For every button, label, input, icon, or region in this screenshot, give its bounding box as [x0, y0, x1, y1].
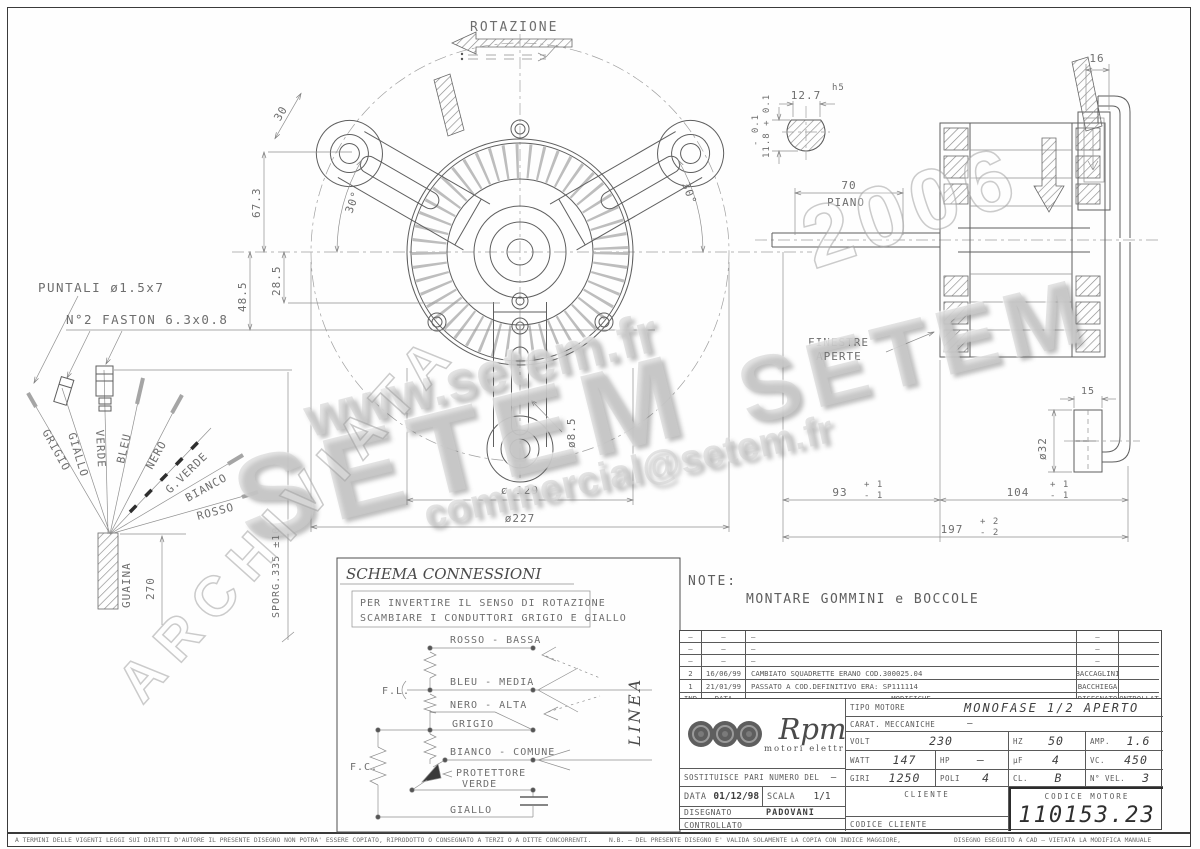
rev-date: –: [702, 631, 746, 643]
scala-value: 1/1: [799, 791, 845, 802]
volt-value: 230: [874, 734, 1008, 748]
logo-cell: Rpm motori elettrici: [680, 699, 846, 769]
rev-drawn: BACCHIEGA: [1077, 680, 1119, 693]
data-value: 01/12/98: [710, 791, 762, 802]
rev-checked: [1119, 655, 1159, 667]
cable-length-dim: 270: [144, 577, 157, 600]
dim-93: 93: [832, 486, 847, 499]
rev-date: 16/06/99: [702, 667, 746, 680]
dim-h5: h5: [832, 83, 845, 93]
giri-label: GIRI: [846, 774, 874, 783]
vent-arrow-hatch: [1034, 138, 1064, 212]
dim-dia8-5: ø8.5: [565, 418, 578, 449]
rev-desc: –: [746, 655, 1077, 667]
motor-side-view: 12.7 h5 11.8 + 0.1 - 0.1 16 70 PIANO FIN…: [751, 52, 1160, 542]
shaft-section-detail: 12.7 h5 11.8 + 0.1 - 0.1: [751, 83, 845, 164]
poli-label: POLI: [936, 774, 964, 783]
dim-11-8: 11.8 + 0.1: [762, 94, 772, 158]
side-view-dimensions: 16 70 PIANO FINESTRE APERTE 93 + 1 - 1 1…: [783, 52, 1128, 542]
cliente-label: CLIENTE: [904, 790, 950, 799]
dim-28-5: 28.5: [270, 266, 283, 297]
vc-value: 450: [1109, 753, 1163, 767]
note-text: MONTARE GOMMINI e BOCCOLE: [746, 592, 979, 607]
codice-motore-label: CODICE MOTORE: [1045, 792, 1130, 801]
brand-tagline: motori elettrici: [764, 744, 846, 754]
tipo-value: MONOFASE 1/2 APERTO: [964, 701, 1163, 715]
rev-ind: –: [680, 655, 702, 667]
dim-16: 16: [1089, 52, 1104, 65]
dim-104: 104: [1007, 486, 1030, 499]
dim-197-tm: - 2: [980, 528, 999, 538]
hz-label: HZ: [1009, 737, 1027, 746]
dim-dia32: ø32: [1036, 437, 1049, 460]
volt-label: VOLT: [846, 737, 874, 746]
carat-value: –: [939, 719, 1163, 729]
rev-checked: [1119, 643, 1159, 655]
finestre-label-1: FINESTRE: [808, 336, 869, 349]
sporgenza-dim: SPORG.335 ±10: [271, 527, 282, 618]
cl-label: CL.: [1009, 774, 1032, 783]
schema-circuit: [370, 646, 652, 820]
schema-rosso: ROSSO - BASSA: [450, 635, 541, 646]
dim-15: 15: [1081, 386, 1095, 397]
dim-12-7: 12.7: [791, 89, 822, 102]
schema-note-2: SCAMBIARE I CONDUTTORI GRIGIO E GIALLO: [360, 613, 627, 624]
dim-197-tp: + 2: [980, 517, 999, 527]
rev-desc: PASSATO A COD.DEFINITIVO ERA: SP111114: [746, 680, 1077, 693]
wire-label-giallo: GIALLO: [65, 431, 91, 479]
amp-value: 1.6: [1114, 734, 1163, 748]
note-label: NOTE:: [688, 574, 737, 589]
rev-desc: –: [746, 643, 1077, 655]
schema-grigio: GRIGIO: [452, 719, 494, 730]
technical-drawing-sheet: ROTAZIONE: [0, 0, 1200, 849]
dim-angle-left: 30°: [343, 189, 363, 215]
sheath-label: GUAINA: [120, 562, 133, 608]
wire-label-nero: NERO: [143, 438, 169, 471]
sostituisce-value: –: [823, 773, 845, 783]
mounting-arm-upper-right: [547, 108, 736, 255]
dim-dia129: ø 129: [501, 484, 539, 497]
rev-date: 21/01/99: [702, 680, 746, 693]
data-label: DATA: [680, 792, 710, 802]
wiring-schema: SCHEMA CONNESSIONI PER INVERTIRE IL SENS…: [337, 558, 680, 832]
rev-ind: –: [680, 643, 702, 655]
schema-nero: NERO - ALTA: [450, 700, 527, 711]
dim-104-tm: - 1: [1050, 491, 1069, 501]
schema-fc: F.C.: [350, 762, 378, 773]
disegnato-label: DISEGNATO: [680, 808, 736, 817]
schema-title: SCHEMA CONNESSIONI: [346, 565, 542, 583]
schema-note-1: PER INVERTIRE IL SENSO DI ROTAZIONE: [360, 598, 606, 609]
front-view-dimensions: 30 30° 30° 67.3 48.5 28.5 ø 129: [236, 86, 729, 532]
top-flag-hatch: [1072, 57, 1102, 131]
uf-value: 4: [1027, 753, 1085, 767]
uf-label: µF: [1009, 756, 1027, 765]
cl-value: B: [1032, 771, 1085, 785]
hp-value: –: [954, 753, 1008, 767]
sostituisce-label: SOSTITUISCE PARI NUMERO DEL: [680, 773, 823, 782]
rev-drawn: –: [1077, 643, 1119, 655]
cable-sheath: [98, 533, 118, 609]
vc-label: VC.: [1086, 756, 1109, 765]
wire-label-bleu: BLEU: [114, 432, 134, 465]
cable-harness: GRIGIO GIALLO VERDE BLEU NERO G.VERDE BI…: [28, 280, 655, 642]
wire-labels: GRIGIO GIALLO VERDE BLEU NERO G.VERDE BI…: [39, 427, 235, 523]
rev-drawn: –: [1077, 631, 1119, 643]
dim-104-tp: + 1: [1050, 480, 1069, 490]
nvel-label: N° VEL.: [1086, 774, 1129, 783]
rev-ind: 2: [680, 667, 702, 680]
dim-arm-width: 30: [271, 104, 290, 124]
disegnato-value: PADOVANI: [736, 808, 845, 818]
schema-giallo: GIALLO: [450, 805, 492, 816]
schema-protettore: PROTETTORE: [456, 768, 526, 779]
watt-label: WATT: [846, 756, 874, 765]
nvel-value: 3: [1129, 771, 1163, 785]
finestre-label-2: APERTE: [816, 350, 862, 363]
controllato-label: CONTROLLATO: [680, 821, 746, 830]
rev-desc: –: [746, 631, 1077, 643]
dim-11-8-tol: - 0.1: [751, 114, 761, 146]
rev-checked: [1119, 667, 1159, 680]
amp-label: AMP.: [1086, 737, 1114, 746]
rev-ind: –: [680, 631, 702, 643]
codice-cliente-label: CODICE CLIENTE: [846, 820, 931, 829]
dim-93-tm: - 1: [864, 491, 883, 501]
legal-left: A TERMINI DELLE VIGENTI LEGGI SUI DIRITT…: [15, 837, 591, 844]
rotation-label: ROTAZIONE: [470, 20, 558, 35]
rev-drawn: BACCAGLINI: [1077, 667, 1119, 680]
rotation-direction-arrow: ROTAZIONE: [452, 20, 572, 61]
watt-value: 147: [874, 753, 935, 767]
dim-197: 197: [941, 523, 964, 536]
rpm-logo-icon: [686, 712, 764, 756]
legal-strip: A TERMINI DELLE VIGENTI LEGGI SUI DIRITT…: [7, 833, 1191, 847]
brand-name: Rpm: [764, 714, 846, 744]
legal-mid: N.B. – DEL PRESENTE DISEGNO E' VALIDA SO…: [609, 837, 901, 844]
title-block: Rpm motori elettrici SOSTITUISCE PARI NU…: [679, 698, 1162, 830]
legal-right: DISEGNO ESEGUITO A CAD – VIETATA LA MODI…: [954, 837, 1151, 844]
rev-drawn: –: [1077, 655, 1119, 667]
puntali-label: PUNTALI ø1.5x7: [38, 280, 164, 295]
tipo-label: TIPO MOTORE: [846, 703, 964, 712]
rev-ind: 1: [680, 680, 702, 693]
rev-date: –: [702, 643, 746, 655]
giri-value: 1250: [874, 771, 935, 785]
wire-label-verde: VERDE: [93, 429, 108, 468]
hz-value: 50: [1027, 734, 1085, 748]
carat-label: CARAT. MECCANICHE: [846, 720, 939, 729]
revision-table: – – – – – – – – – – – – 2 16/06/99 CAMBI…: [679, 630, 1162, 705]
rev-checked: [1119, 680, 1159, 693]
rev-date: –: [702, 655, 746, 667]
dim-67-3: 67.3: [250, 188, 263, 219]
bracket-straps: [1098, 96, 1130, 462]
dim-93-tp: + 1: [864, 480, 883, 490]
schema-linea: LINEA: [625, 677, 644, 747]
rev-desc: CAMBIATO SQUADRETTE ERANO COD.300025.04: [746, 667, 1077, 680]
rotation-flag-hatch: [434, 74, 464, 136]
piano-label: PIANO: [827, 196, 865, 209]
hp-label: HP: [936, 756, 954, 765]
schema-fl: F.L.: [382, 686, 410, 697]
schema-verde: VERDE: [462, 779, 497, 790]
dim-48-5: 48.5: [236, 282, 249, 313]
dim-dia227: ø227: [505, 512, 536, 525]
dim-70: 70: [841, 179, 856, 192]
scala-label: SCALA: [763, 792, 799, 802]
motor-front-view: 30 30° 30° 67.3 48.5 28.5 ø 129: [232, 34, 812, 532]
schema-bleu: BLEU - MEDIA: [450, 677, 534, 688]
schema-bianco: BIANCO - COMUNE: [450, 747, 555, 758]
poli-value: 4: [964, 771, 1008, 785]
codice-motore-value: 110153.23: [1018, 801, 1155, 831]
faston-label: N°2 FASTON 6.3x0.8: [66, 312, 228, 327]
dim-angle-right: 30°: [679, 181, 699, 207]
rev-checked: [1119, 631, 1159, 643]
